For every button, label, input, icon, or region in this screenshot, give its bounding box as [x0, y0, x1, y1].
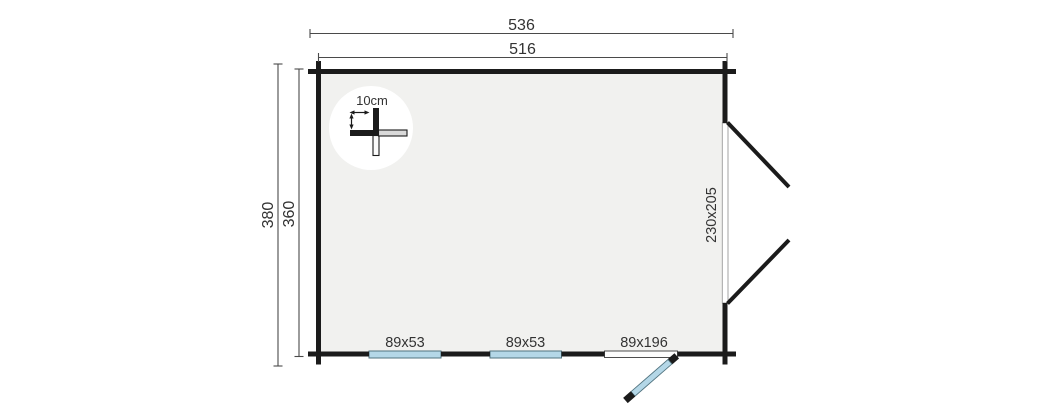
door-label: 89x196 [620, 335, 668, 351]
double-door-label: 230x205 [704, 187, 720, 243]
window-2-glazing [490, 351, 562, 358]
inner-depth-label: 360 [281, 201, 298, 228]
door-leaf-panel [631, 359, 672, 396]
dimension-inner-width: 516 [319, 41, 728, 62]
dimension-inner-depth: 360 [281, 69, 304, 357]
door-leaf [623, 353, 679, 403]
window-1-glazing [369, 351, 441, 358]
floorplan-page: 10cm [0, 0, 1050, 420]
double-door-swing-top [728, 123, 790, 188]
dimension-overall-depth: 380 [260, 64, 283, 366]
door-threshold [605, 351, 678, 358]
overall-depth-label: 380 [260, 202, 277, 229]
inner-width-label: 516 [509, 41, 536, 58]
wall-thickness-label: 10cm [356, 93, 388, 108]
wall-detail-bubble: 10cm [329, 86, 413, 170]
window-1-label: 89x53 [385, 335, 425, 351]
dimension-overall-width: 536 [310, 17, 733, 38]
log-end-horizontal [379, 130, 408, 136]
log-wall-horizontal [350, 130, 379, 136]
double-door-swing-bottom [728, 240, 790, 304]
log-end-vertical [373, 136, 379, 156]
double-door-opening [722, 123, 728, 303]
window-2-label: 89x53 [506, 335, 546, 351]
overall-width-label: 536 [508, 17, 535, 34]
floorplan-drawing: 10cm [0, 0, 1050, 420]
